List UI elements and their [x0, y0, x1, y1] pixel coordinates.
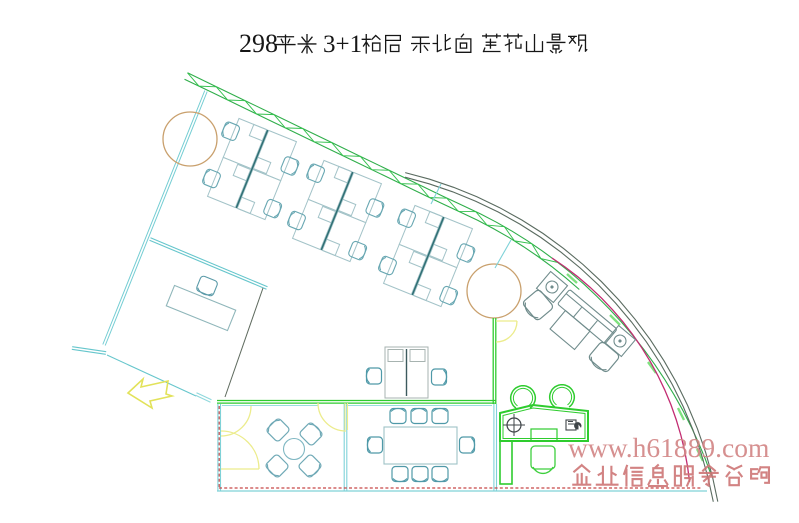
svg-text:www.h61889.com: www.h61889.com [568, 432, 769, 463]
svg-text:298: 298 [239, 29, 278, 58]
svg-text:3+1: 3+1 [323, 31, 362, 58]
